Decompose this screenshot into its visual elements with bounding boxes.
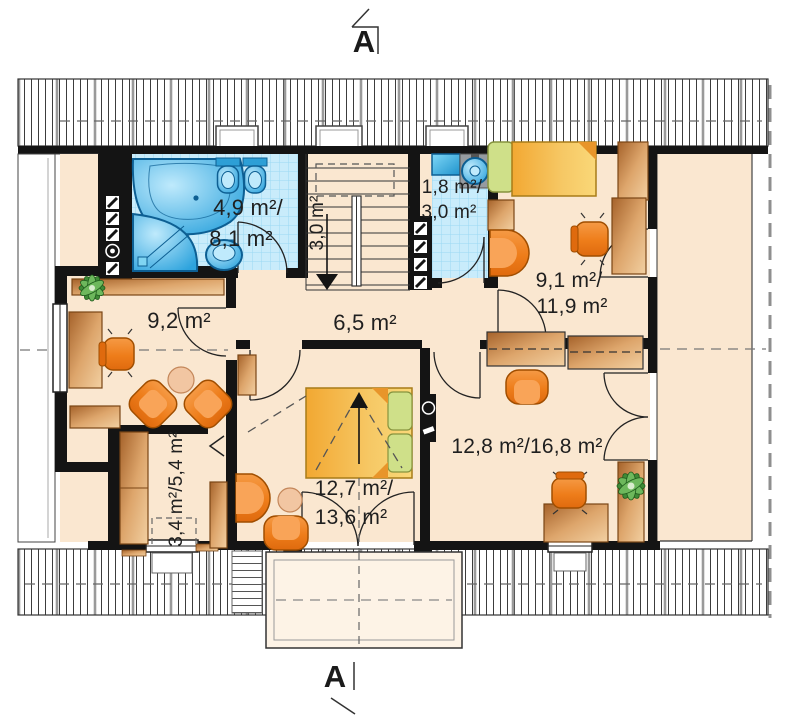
coffee-table <box>278 488 302 512</box>
bathroom-area-label-line1: 4,9 m²/ <box>213 195 283 221</box>
bedroom-area-label-line1: 12,7 m²/ <box>315 477 394 501</box>
armchair <box>490 230 529 276</box>
exterior-wall-top <box>18 146 768 154</box>
room-left-area-label: 9,2 m² <box>147 308 211 334</box>
wardrobe <box>487 332 565 366</box>
hall-area-label: 6,5 m² <box>333 310 397 336</box>
nightstand <box>488 200 514 230</box>
floor-plan-page: A A 4,9 m²/ 8,1 m² 3,0 m² 1,8 m²/ 3,0 m²… <box>0 0 800 724</box>
closet-area-label: 3,4 m²/5,4 m² <box>166 431 188 547</box>
desk <box>544 504 608 542</box>
room-top-right-area-label-line1: 9,1 m²/ <box>536 269 603 293</box>
desk <box>612 198 646 274</box>
wc-area-label-line2: 3,0 m² <box>421 202 476 224</box>
wc-area-label-line1: 1,8 m²/ <box>422 177 483 199</box>
cabinet <box>70 406 120 428</box>
cabinet <box>238 355 256 395</box>
top-roof-hatch <box>18 79 768 146</box>
section-marker-top-label: A <box>353 24 375 60</box>
right-attic-space <box>657 85 770 618</box>
staircase-area-label: 3,0 m² <box>307 195 329 250</box>
section-marker-bottom-label: A <box>324 659 346 695</box>
window <box>53 304 67 392</box>
balcony <box>266 552 462 648</box>
bidet-icon <box>243 158 267 193</box>
desk <box>69 312 102 388</box>
single-bed <box>488 142 596 196</box>
armchair <box>264 516 308 550</box>
tv-icon <box>421 394 436 442</box>
floor-plan-drawing <box>0 0 800 724</box>
room-bottom-right-area-label: 12,8 m²/16,8 m² <box>451 435 602 459</box>
armchair <box>506 370 548 404</box>
coffee-table <box>168 367 194 393</box>
room-top-right-area-label-line2: 11,9 m² <box>536 295 607 319</box>
wc-counter <box>432 154 460 175</box>
bedroom-area-label-line2: 13,6 m² <box>315 506 388 530</box>
bathroom-area-label-line2: 8,1 m² <box>209 226 273 252</box>
wardrobe <box>618 142 648 200</box>
cabinet <box>210 482 227 548</box>
window <box>548 540 592 571</box>
toilet-icon <box>216 158 240 193</box>
wardrobe <box>568 336 643 369</box>
